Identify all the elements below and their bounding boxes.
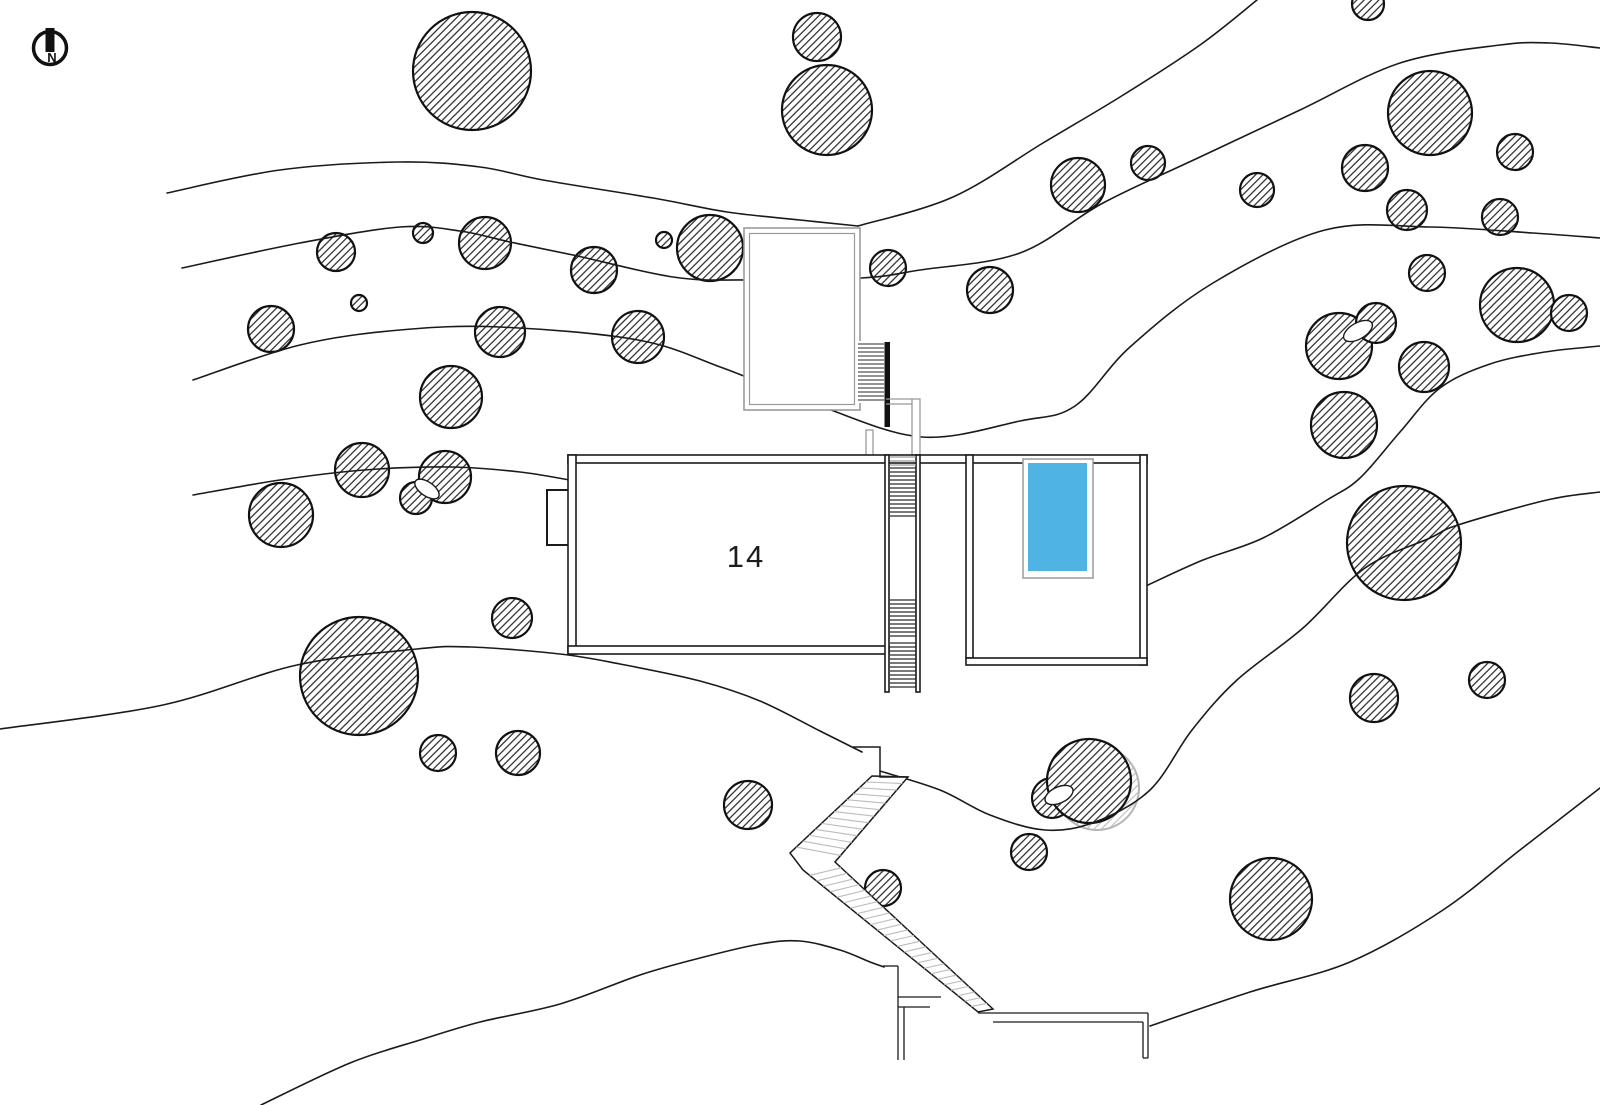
link-path	[912, 399, 920, 455]
tree-icon	[492, 598, 532, 638]
wall	[885, 455, 889, 692]
upper-deck	[744, 228, 860, 410]
tree-icon	[300, 617, 418, 735]
tree-icon	[724, 781, 772, 829]
tree-icon	[1352, 0, 1384, 20]
link-path	[866, 430, 873, 457]
tree-icon	[1230, 858, 1312, 940]
site-plan-svg: 14 N	[0, 0, 1600, 1105]
tree-icon	[351, 295, 367, 311]
stair-side-wall	[885, 342, 891, 427]
tree-icon	[1350, 674, 1398, 722]
tree-icon	[413, 12, 531, 130]
tree-icon	[1051, 158, 1105, 212]
tree-icon	[1011, 834, 1047, 870]
tree-icon	[1469, 662, 1505, 698]
tree-icon	[967, 267, 1013, 313]
wall	[966, 658, 1147, 665]
tree-icon	[1311, 392, 1377, 458]
tree-icon	[782, 65, 872, 155]
site-plan: 14 N	[0, 0, 1600, 1105]
wall	[568, 646, 889, 654]
wall	[966, 455, 973, 658]
tree-icon	[1342, 145, 1388, 191]
wall	[568, 455, 576, 654]
wall	[916, 455, 920, 692]
tree-icon	[1399, 342, 1449, 392]
tree-icon	[1409, 255, 1445, 291]
north-label: N	[47, 50, 56, 65]
tree-icon	[420, 735, 456, 771]
tree-icon	[420, 366, 482, 428]
tree-icon	[1240, 173, 1274, 207]
tree-icon	[870, 250, 906, 286]
tree-icon	[1551, 295, 1587, 331]
tree-icon	[677, 215, 743, 281]
tree-icon	[1480, 268, 1554, 342]
contour-line	[1150, 788, 1600, 1026]
tree-icon	[249, 483, 313, 547]
tree-icon	[1387, 190, 1427, 230]
tree-icon	[1388, 71, 1472, 155]
north-arrow: N	[34, 28, 67, 65]
tree-icon	[248, 306, 294, 352]
pool-water	[1028, 463, 1087, 571]
north-arrow-needle	[46, 28, 55, 52]
contour-line	[261, 941, 884, 1105]
tree-icon	[1047, 739, 1131, 823]
contour-line	[167, 162, 858, 226]
tree-icon	[1497, 134, 1533, 170]
tree-icon	[459, 217, 511, 269]
tree-icon	[656, 232, 672, 248]
tree-icon	[496, 731, 540, 775]
wall	[1140, 455, 1147, 665]
tree-icon	[475, 307, 525, 357]
tree-icon	[1347, 486, 1461, 600]
tree-icon	[571, 247, 617, 293]
tree-icon	[793, 13, 841, 61]
lot-number-label: 14	[727, 539, 765, 574]
